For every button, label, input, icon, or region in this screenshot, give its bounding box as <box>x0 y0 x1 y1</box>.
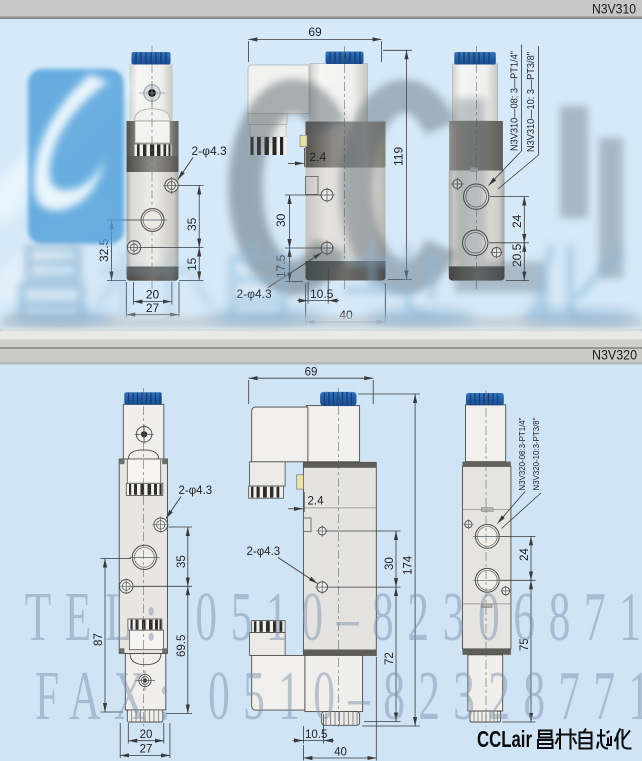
svg-text:2-φ4.3: 2-φ4.3 <box>247 546 281 558</box>
svg-text:27: 27 <box>140 744 153 756</box>
svg-text:20: 20 <box>146 288 160 302</box>
svg-text:2-φ4.3: 2-φ4.3 <box>179 485 213 497</box>
svg-text:35: 35 <box>176 555 188 568</box>
svg-text:N3V310—08: 3—PT1/4": N3V310—08: 3—PT1/4" <box>509 51 521 151</box>
svg-text:30: 30 <box>274 213 288 227</box>
svg-text:2-φ4.3: 2-φ4.3 <box>192 144 227 158</box>
svg-text:FAX: 0510–82328771: FAX: 0510–82328771 <box>35 656 642 734</box>
svg-text:N3V320-08:3-PT1/4": N3V320-08:3-PT1/4" <box>518 417 527 490</box>
svg-text:CCLair: CCLair <box>477 726 532 752</box>
svg-text:N3V320-10:3-PT3/8": N3V320-10:3-PT3/8" <box>532 417 541 490</box>
svg-text:27: 27 <box>146 301 160 315</box>
svg-text:35: 35 <box>185 217 199 231</box>
svg-text:69: 69 <box>308 25 322 39</box>
svg-text:174: 174 <box>403 555 415 575</box>
svg-text:N3V310: N3V310 <box>592 2 636 17</box>
svg-text:69: 69 <box>305 366 318 378</box>
svg-text:N3V310—10: 3—PT3/8": N3V310—10: 3—PT3/8" <box>525 52 537 152</box>
svg-text:2.4: 2.4 <box>308 496 325 508</box>
svg-text:2.4: 2.4 <box>310 150 327 164</box>
svg-text:24: 24 <box>519 548 531 561</box>
svg-text:N3V320: N3V320 <box>592 348 637 363</box>
svg-text:119: 119 <box>392 147 406 166</box>
svg-text:24: 24 <box>510 214 524 228</box>
svg-text:40: 40 <box>334 746 347 758</box>
svg-text:30: 30 <box>384 557 396 570</box>
svg-text:TEL: 0510–82306871: TEL: 0510–82306871 <box>25 577 642 655</box>
